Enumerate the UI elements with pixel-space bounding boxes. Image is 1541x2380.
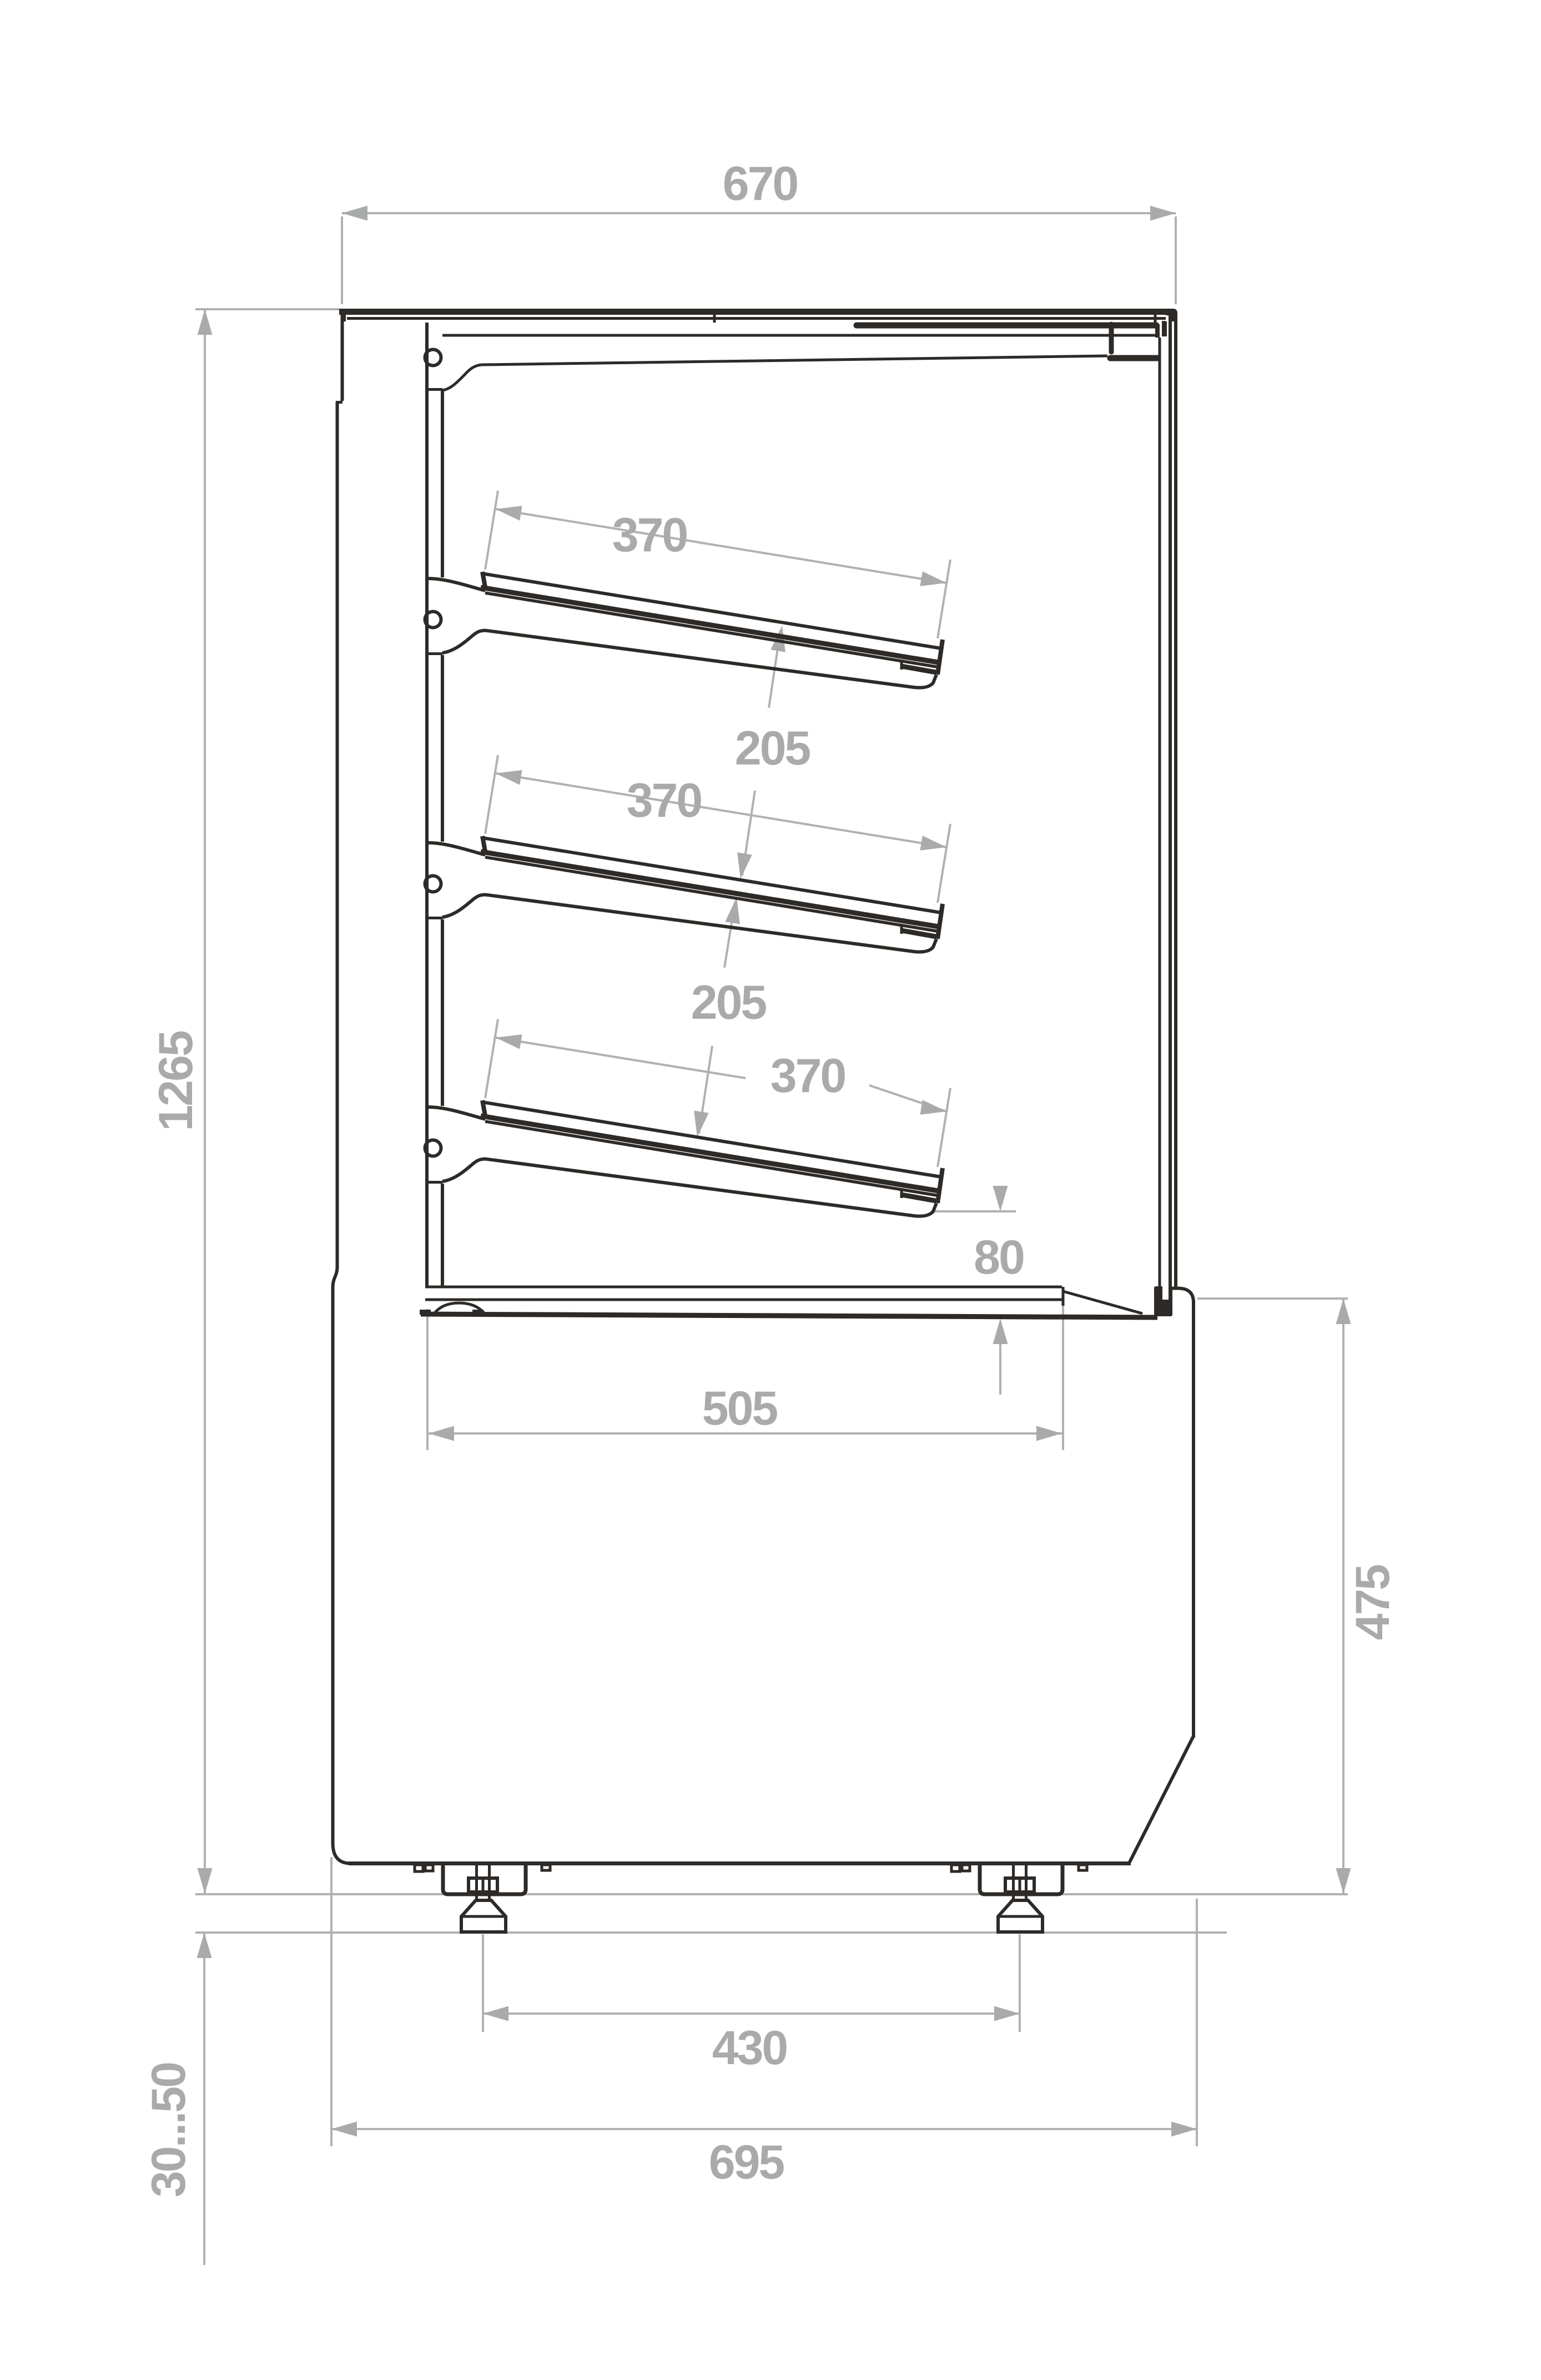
svg-text:30...50: 30...50 <box>142 2063 195 2197</box>
svg-text:370: 370 <box>612 509 687 562</box>
svg-text:695: 695 <box>709 2136 784 2189</box>
svg-text:430: 430 <box>712 2021 787 2075</box>
svg-text:670: 670 <box>723 157 798 210</box>
svg-text:370: 370 <box>771 1049 845 1103</box>
svg-text:205: 205 <box>691 976 767 1029</box>
svg-text:80: 80 <box>974 1231 1024 1284</box>
svg-text:505: 505 <box>702 1382 778 1435</box>
svg-text:475: 475 <box>1346 1565 1399 1641</box>
svg-text:205: 205 <box>735 722 810 775</box>
svg-text:370: 370 <box>627 774 702 827</box>
svg-text:1265: 1265 <box>149 1031 203 1131</box>
